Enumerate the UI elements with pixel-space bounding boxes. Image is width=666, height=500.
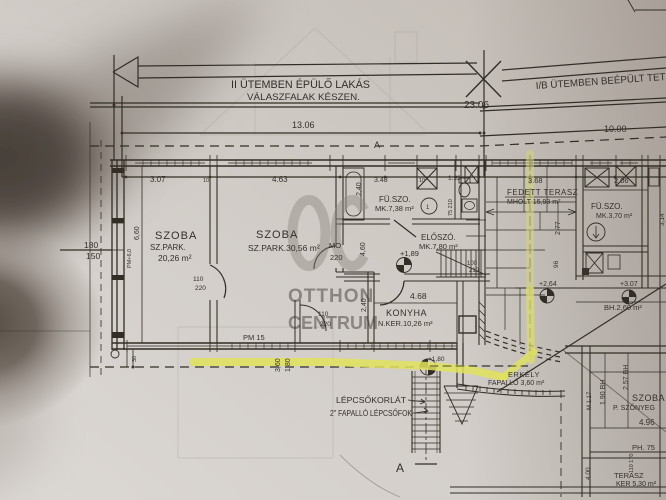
svg-text:FÜ.SZO.: FÜ.SZO. <box>379 195 411 204</box>
svg-text:II ÜTEMBEN ÉPÜLŐ LAKÁS: II ÜTEMBEN ÉPÜLŐ LAKÁS <box>231 77 370 91</box>
svg-text:23.06: 23.06 <box>464 100 489 111</box>
svg-text:A: A <box>396 461 404 475</box>
svg-text:110: 110 <box>193 276 204 283</box>
svg-text:3.68: 3.68 <box>528 176 543 185</box>
svg-text:2,40: 2,40 <box>356 182 363 196</box>
svg-text:30: 30 <box>132 356 138 362</box>
svg-text:20,26 m²: 20,26 m² <box>158 253 192 263</box>
svg-text:PM 15: PM 15 <box>243 333 265 342</box>
svg-text:6,60: 6,60 <box>134 226 141 240</box>
svg-text:2,40: 2,40 <box>361 298 368 312</box>
svg-text:75 210: 75 210 <box>448 199 454 216</box>
svg-text:VÁLASZFALAK KÉSZEN.: VÁLASZFALAK KÉSZEN. <box>247 92 360 102</box>
svg-text:220: 220 <box>195 285 206 292</box>
svg-text:FÜ.SZO.: FÜ.SZO. <box>591 202 623 211</box>
svg-text:10: 10 <box>419 178 425 184</box>
svg-text:2.06: 2.06 <box>614 176 629 185</box>
svg-text:1.90 BH: 1.90 BH <box>600 380 607 405</box>
svg-text:ERKÉLY: ERKÉLY <box>508 370 540 379</box>
svg-text:+1,89: +1,89 <box>400 249 419 258</box>
svg-text:3,60: 3,60 <box>275 358 282 372</box>
svg-text:13.06: 13.06 <box>292 120 315 130</box>
svg-text:BH.2,60 m²: BH.2,60 m² <box>604 303 642 312</box>
svg-text:FAPALLÓ 3,60 m²: FAPALLÓ 3,60 m² <box>488 378 545 387</box>
svg-text:1.12: 1.12 <box>448 175 461 182</box>
svg-text:SZOBA: SZOBA <box>155 230 197 242</box>
svg-text:96: 96 <box>553 260 560 268</box>
svg-text:180: 180 <box>84 240 98 250</box>
svg-text:SZ.PARK.: SZ.PARK. <box>150 243 186 252</box>
svg-text:110: 110 <box>318 311 329 318</box>
svg-text:2" FAPALLÓ LÉPCSŐFOK: 2" FAPALLÓ LÉPCSŐFOK <box>330 409 413 418</box>
svg-text:4.68: 4.68 <box>410 291 427 301</box>
svg-text:+2,64: +2,64 <box>539 281 557 288</box>
svg-text:2.57 BH: 2.57 BH <box>623 365 630 390</box>
svg-text:3.48: 3.48 <box>374 177 388 184</box>
svg-text:CENTRUM: CENTRUM <box>288 313 378 333</box>
svg-text:4.00: 4.00 <box>585 467 592 480</box>
svg-text:4.63: 4.63 <box>272 175 288 184</box>
svg-text:+1,80: +1,80 <box>428 356 445 363</box>
svg-text:P. SZŐNYEG: P. SZŐNYEG <box>613 403 655 412</box>
svg-text:MHOLT 15,93 m²: MHOLT 15,93 m² <box>507 199 561 206</box>
svg-text:MK.3,70 m²: MK.3,70 m² <box>596 213 633 220</box>
svg-text:10: 10 <box>203 178 209 184</box>
svg-text:PH. 75: PH. 75 <box>632 443 655 452</box>
svg-text:210: 210 <box>469 268 480 274</box>
svg-text:N.KER.10,26 m²: N.KER.10,26 m² <box>378 319 433 328</box>
svg-text:+3.07: +3.07 <box>620 281 638 288</box>
svg-text:KONYHA: KONYHA <box>386 308 427 318</box>
svg-text:4.96: 4.96 <box>639 418 655 427</box>
svg-text:220: 220 <box>320 321 331 328</box>
svg-text:3.07: 3.07 <box>150 175 166 184</box>
svg-text:KER 5,30 m²: KER 5,30 m² <box>616 481 657 488</box>
svg-text:110 170: 110 170 <box>629 454 635 473</box>
svg-text:2,77: 2,77 <box>555 221 562 235</box>
svg-text:MK.7,38 m²: MK.7,38 m² <box>375 204 414 213</box>
svg-text:10.00: 10.00 <box>604 124 627 134</box>
svg-text:SZOBA: SZOBA <box>632 393 665 403</box>
svg-text:M 1.17: M 1.17 <box>587 391 593 410</box>
svg-text:A: A <box>374 140 380 150</box>
svg-text:4,60: 4,60 <box>360 242 367 256</box>
svg-text:150: 150 <box>86 251 100 261</box>
svg-text:MO: MO <box>329 241 341 250</box>
svg-text:220: 220 <box>330 253 343 262</box>
svg-text:100: 100 <box>467 261 478 267</box>
svg-text:LÉPCSŐKORLÁT: LÉPCSŐKORLÁT <box>336 396 406 405</box>
svg-text:1,80: 1,80 <box>285 358 292 372</box>
svg-text:PM+6,0: PM+6,0 <box>127 249 133 268</box>
svg-text:SZ.PARK.30,56 m²: SZ.PARK.30,56 m² <box>248 243 320 253</box>
svg-text:ELŐSZÓ.: ELŐSZÓ. <box>421 233 456 242</box>
svg-text:MK.7,80 m²: MK.7,80 m² <box>419 242 458 251</box>
svg-text:3,14: 3,14 <box>659 213 666 226</box>
svg-text:SZOBA: SZOBA <box>256 229 298 241</box>
svg-text:FEDETT TERASZ: FEDETT TERASZ <box>507 188 578 197</box>
